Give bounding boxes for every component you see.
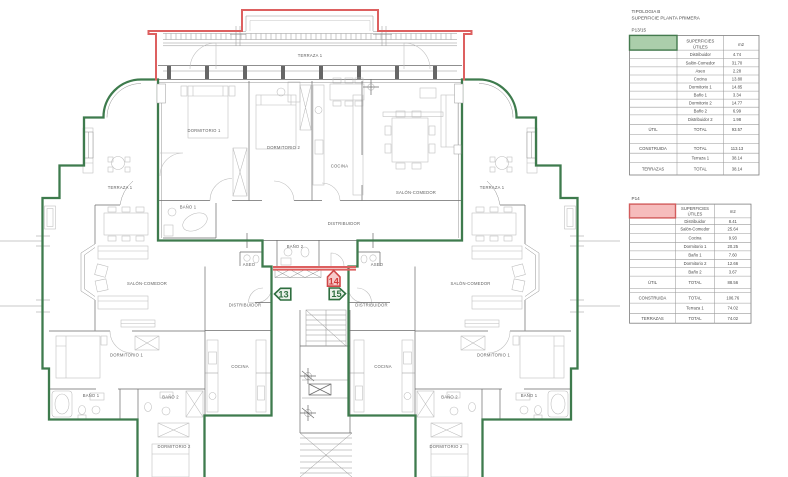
svg-text:Distribuidor: Distribuidor [690,52,712,57]
svg-text:Baño 2: Baño 2 [688,269,702,274]
svg-text:ASEO: ASEO [371,262,384,267]
svg-text:Salón-Comedor: Salón-Comedor [680,227,710,232]
svg-text:DORMITORIO 1: DORMITORIO 1 [110,353,144,358]
svg-text:14: 14 [329,276,340,286]
svg-text:38.14: 38.14 [732,166,743,171]
svg-text:ÚTIL: ÚTIL [648,280,658,285]
svg-text:106.76: 106.76 [726,295,739,300]
svg-text:BAÑO 2: BAÑO 2 [162,395,179,400]
svg-text:TERRAZA 1: TERRAZA 1 [298,53,323,58]
svg-text:CONSTRUIDA: CONSTRUIDA [639,295,667,300]
svg-text:20.25: 20.25 [728,244,739,249]
svg-text:SUPERFICIES: SUPERFICIES [681,206,709,211]
svg-text:DORMITORIO 2: DORMITORIO 2 [267,145,301,150]
svg-text:CONSTRUIDA: CONSTRUIDA [639,146,667,151]
svg-text:Dormitorio 2: Dormitorio 2 [689,101,712,106]
svg-text:BAÑO 2: BAÑO 2 [287,244,304,249]
svg-text:m2: m2 [738,42,744,47]
svg-text:TOTAL: TOTAL [688,316,702,321]
svg-text:COCINA: COCINA [331,164,349,169]
svg-text:15: 15 [331,289,341,299]
svg-text:TERRAZA 1: TERRAZA 1 [108,185,133,190]
svg-text:ÚTIL: ÚTIL [648,127,658,132]
svg-text:P13/15: P13/15 [632,28,647,33]
svg-text:12.66: 12.66 [728,261,739,266]
svg-text:TOTAL: TOTAL [694,127,708,132]
svg-text:SALÓN-COMEDOR: SALÓN-COMEDOR [127,281,167,286]
svg-text:TERRAZA 1: TERRAZA 1 [480,185,505,190]
svg-text:ÚTILES: ÚTILES [688,212,703,217]
svg-text:88.56: 88.56 [728,280,739,285]
svg-text:P14: P14 [632,196,641,201]
svg-text:31.70: 31.70 [732,60,743,65]
svg-text:Distribuidor: Distribuidor [684,219,706,224]
svg-text:ÚTILES: ÚTILES [693,44,708,49]
svg-text:DISTRIBUIDOR: DISTRIBUIDOR [229,303,261,308]
svg-text:Dormitorio 2: Dormitorio 2 [684,261,707,266]
svg-text:DORMITORIO 1: DORMITORIO 1 [477,353,511,358]
svg-text:TOTAL: TOTAL [694,166,708,171]
svg-text:SUPERFICIES: SUPERFICIES [686,39,714,44]
svg-text:1.98: 1.98 [733,117,742,122]
svg-text:113.13: 113.13 [731,146,744,151]
svg-text:Baño 2: Baño 2 [694,109,708,114]
svg-text:Terraza 1: Terraza 1 [686,306,704,311]
svg-text:m2: m2 [730,209,736,214]
svg-text:TOTAL: TOTAL [688,280,702,285]
svg-text:Cocina: Cocina [688,235,702,240]
svg-text:SUPERFICIE PLANTA PRIMERA: SUPERFICIE PLANTA PRIMERA [632,16,701,21]
svg-text:Baño 1: Baño 1 [694,93,708,98]
svg-text:TOTAL: TOTAL [688,295,702,300]
svg-text:TOTAL: TOTAL [694,146,708,151]
svg-text:Distribuidor 2: Distribuidor 2 [688,117,713,122]
svg-text:BAÑO 1: BAÑO 1 [83,393,100,398]
svg-text:SALÓN-COMEDOR: SALÓN-COMEDOR [396,190,436,195]
svg-text:74.02: 74.02 [728,316,739,321]
svg-text:COCINA: COCINA [374,364,392,369]
svg-text:9.93: 9.93 [729,235,738,240]
svg-text:3.67: 3.67 [729,269,738,274]
svg-text:DISTRIBUIDOR: DISTRIBUIDOR [355,303,387,308]
svg-text:74.02: 74.02 [728,306,739,311]
svg-text:Terraza 1: Terraza 1 [692,156,710,161]
svg-text:3.34: 3.34 [733,93,742,98]
svg-text:6.99: 6.99 [733,109,742,114]
svg-text:Cocina: Cocina [694,77,708,82]
svg-text:DORMITORIO 2: DORMITORIO 2 [429,444,463,449]
svg-text:7.60: 7.60 [729,253,738,258]
svg-text:TIPOLOGIA B: TIPOLOGIA B [632,9,661,14]
svg-text:25.64: 25.64 [728,227,739,232]
svg-text:DORMITORIO 2: DORMITORIO 2 [157,444,191,449]
svg-text:2.28: 2.28 [733,69,742,74]
svg-text:TERRAZAS: TERRAZAS [641,316,664,321]
svg-text:TERRAZAS: TERRAZAS [642,166,665,171]
svg-text:13: 13 [278,290,288,300]
svg-text:38.14: 38.14 [732,156,743,161]
svg-text:DORMITORIO 1: DORMITORIO 1 [187,128,221,133]
svg-text:Dormitorio 1: Dormitorio 1 [689,85,712,90]
svg-text:BAÑO 1: BAÑO 1 [180,205,197,210]
svg-text:14.77: 14.77 [732,101,743,106]
svg-text:SALÓN-COMEDOR: SALÓN-COMEDOR [450,281,490,286]
svg-text:BAÑO 2: BAÑO 2 [441,395,458,400]
svg-text:13.80: 13.80 [732,77,743,82]
svg-text:COCINA: COCINA [231,364,249,369]
svg-text:14.85: 14.85 [732,85,743,90]
svg-text:Salón-Comedor: Salón-Comedor [686,60,716,65]
svg-text:8.41: 8.41 [729,219,738,224]
svg-text:ASEO: ASEO [243,262,256,267]
svg-text:Baño 1: Baño 1 [688,253,702,258]
svg-text:BAÑO 1: BAÑO 1 [521,393,538,398]
svg-text:Dormitorio 1: Dormitorio 1 [684,244,707,249]
svg-text:DISTRIBUIDOR: DISTRIBUIDOR [328,221,360,226]
svg-text:Aseo: Aseo [696,69,706,74]
svg-text:4.74: 4.74 [733,52,742,57]
svg-text:93.57: 93.57 [732,127,743,132]
